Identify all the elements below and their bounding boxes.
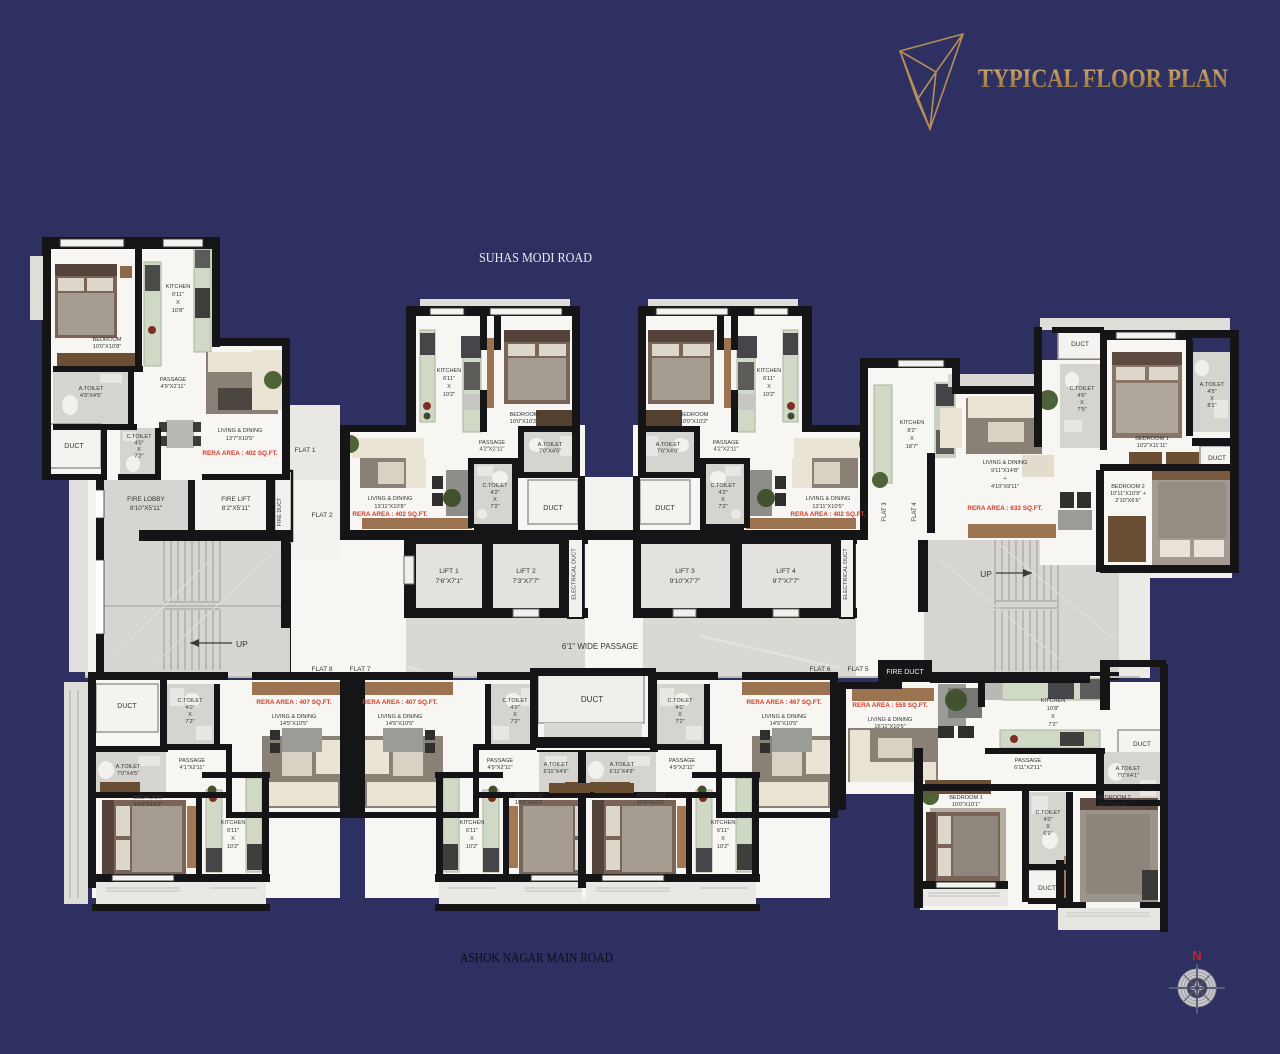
svg-text:DUCT: DUCT bbox=[581, 695, 603, 704]
svg-text:A.TOILET7'6"X4'9": A.TOILET7'6"X4'9" bbox=[656, 442, 681, 455]
svg-text:RERA AREA : 407 SQ.FT.: RERA AREA : 407 SQ.FT. bbox=[256, 699, 332, 706]
svg-text:FLAT 3: FLAT 3 bbox=[882, 502, 888, 522]
svg-text:PASSAGE4'2"X2'11": PASSAGE4'2"X2'11" bbox=[479, 440, 506, 453]
svg-text:DUCT: DUCT bbox=[64, 443, 84, 450]
svg-text:RERA AREA : 407 SQ.FT.: RERA AREA : 407 SQ.FT. bbox=[362, 699, 438, 706]
svg-text:BEDROOM10'0"X10'2": BEDROOM10'0"X10'2" bbox=[510, 412, 539, 425]
svg-text:DUCT: DUCT bbox=[655, 505, 675, 512]
svg-text:PASSAGE4'1"X2'11": PASSAGE4'1"X2'11" bbox=[179, 758, 206, 771]
svg-text:RERA AREA : 402 SQ.FT.: RERA AREA : 402 SQ.FT. bbox=[202, 450, 278, 457]
svg-text:PASSAGE6'11"X2'11": PASSAGE6'11"X2'11" bbox=[1014, 758, 1042, 771]
svg-text:PASSAGE4'9"X2'11": PASSAGE4'9"X2'11" bbox=[487, 758, 514, 771]
svg-text:A.TOILET4'9"X4'5": A.TOILET4'9"X4'5" bbox=[79, 386, 104, 399]
svg-text:BEDROOM 210'0"X11'10": BEDROOM 210'0"X11'10" bbox=[1097, 795, 1131, 808]
svg-text:A.TOILET7'0"X4'5": A.TOILET7'0"X4'5" bbox=[538, 442, 563, 455]
svg-text:BEDROOM 210'11"X10'9" +2'10"X6: BEDROOM 210'11"X10'9" +2'10"X6'6" bbox=[1110, 484, 1146, 504]
svg-text:FLAT 4: FLAT 4 bbox=[912, 502, 918, 522]
svg-text:RERA AREA : 402 SQ.FT.: RERA AREA : 402 SQ.FT. bbox=[790, 511, 866, 518]
svg-text:A.TOILET6'11"X4'9": A.TOILET6'11"X4'9" bbox=[610, 762, 635, 775]
svg-text:DUCT: DUCT bbox=[1133, 741, 1151, 748]
svg-text:FLAT 6: FLAT 6 bbox=[809, 666, 830, 673]
svg-text:A.TOILET7'0"X4'1": A.TOILET7'0"X4'1" bbox=[1116, 766, 1141, 779]
svg-text:DUCT: DUCT bbox=[1208, 455, 1226, 462]
svg-text:DUCT: DUCT bbox=[1071, 341, 1089, 348]
svg-text:BEDROOM 110'0"X10'1": BEDROOM 110'0"X10'1" bbox=[949, 795, 983, 808]
svg-text:PASSAGE4'9"X2'11": PASSAGE4'9"X2'11" bbox=[160, 377, 187, 390]
svg-text:FLAT 1: FLAT 1 bbox=[294, 447, 315, 454]
svg-text:FIRE DUCT: FIRE DUCT bbox=[886, 669, 924, 676]
svg-text:BEDROOM10'0"X10'2": BEDROOM10'0"X10'2" bbox=[134, 795, 163, 808]
svg-text:DUCT: DUCT bbox=[117, 703, 137, 710]
svg-text:FLAT 2: FLAT 2 bbox=[311, 512, 332, 519]
svg-text:RERA AREA : 559 SQ.FT.: RERA AREA : 559 SQ.FT. bbox=[852, 702, 928, 709]
svg-text:ASHOK NAGAR MAIN ROAD: ASHOK NAGAR MAIN ROAD bbox=[460, 950, 613, 965]
svg-text:ELECTRICAL DUCT: ELECTRICAL DUCT bbox=[572, 548, 578, 600]
svg-text:A.TOILET7'0"X4'5": A.TOILET7'0"X4'5" bbox=[116, 764, 141, 777]
svg-text:6'1" WIDE PASSAGE: 6'1" WIDE PASSAGE bbox=[562, 642, 638, 651]
svg-text:TYPICAL FLOOR PLAN: TYPICAL FLOOR PLAN bbox=[978, 64, 1228, 93]
svg-text:BEDROOM10'5"X10'2": BEDROOM10'5"X10'2" bbox=[637, 793, 666, 806]
svg-text:A.TOILET6'11"X4'9": A.TOILET6'11"X4'9" bbox=[544, 762, 569, 775]
svg-text:FLAT 7: FLAT 7 bbox=[349, 666, 370, 673]
svg-text:DUCT: DUCT bbox=[1038, 885, 1056, 892]
svg-text:BEDROOM10'0"X10'8": BEDROOM10'0"X10'8" bbox=[93, 337, 122, 350]
svg-text:PASSAGE4'2"X2'11": PASSAGE4'2"X2'11" bbox=[713, 440, 740, 453]
svg-text:DUCT: DUCT bbox=[543, 505, 563, 512]
svg-text:RERA AREA : 467 SQ.FT.: RERA AREA : 467 SQ.FT. bbox=[746, 699, 822, 706]
svg-text:SUHAS MODI ROAD: SUHAS MODI ROAD bbox=[479, 250, 592, 265]
svg-text:UP: UP bbox=[236, 639, 248, 649]
svg-text:BEDROOM10'3"X10'2": BEDROOM10'3"X10'2" bbox=[515, 793, 544, 806]
svg-text:FLAT 5: FLAT 5 bbox=[847, 666, 868, 673]
svg-text:FLAT 8: FLAT 8 bbox=[311, 666, 332, 673]
svg-text:BEDROOM 110'2"X11'11": BEDROOM 110'2"X11'11" bbox=[1135, 436, 1169, 449]
svg-text:UP: UP bbox=[980, 569, 992, 579]
svg-text:N: N bbox=[1192, 948, 1201, 963]
svg-text:PASSAGE4'9"X2'11": PASSAGE4'9"X2'11" bbox=[669, 758, 696, 771]
svg-text:ELECTRICAL DUCT: ELECTRICAL DUCT bbox=[843, 548, 849, 600]
svg-text:RERA AREA : 402 SQ.FT.: RERA AREA : 402 SQ.FT. bbox=[352, 511, 428, 518]
svg-text:FIRE DUCT: FIRE DUCT bbox=[277, 497, 283, 526]
svg-text:BEDROOM10'0"X10'2": BEDROOM10'0"X10'2" bbox=[680, 412, 709, 425]
svg-text:RERA AREA : 633 SQ.FT.: RERA AREA : 633 SQ.FT. bbox=[967, 505, 1043, 512]
